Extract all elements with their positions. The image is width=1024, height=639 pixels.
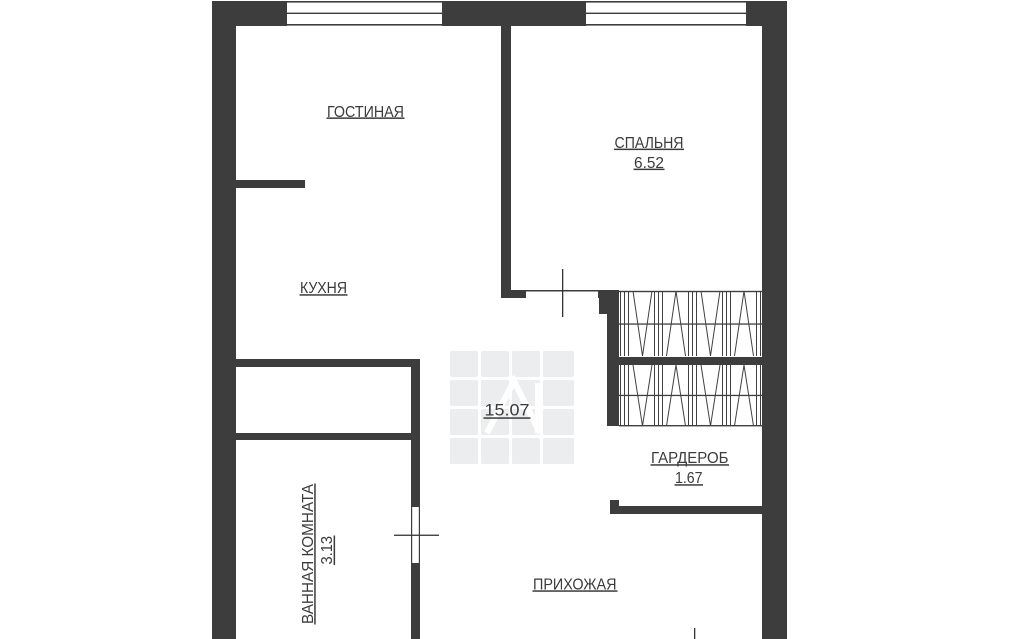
svg-text:3.13: 3.13	[319, 536, 336, 565]
svg-text:15.07: 15.07	[485, 402, 530, 420]
